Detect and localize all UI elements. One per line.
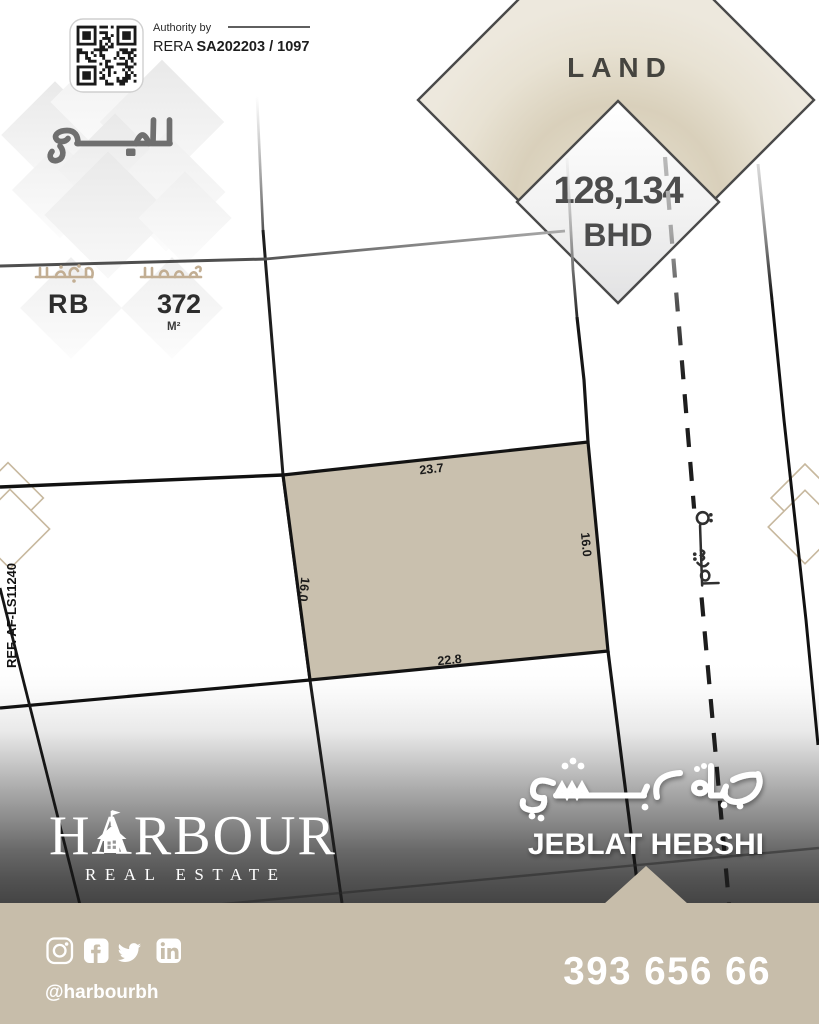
svg-text:16.0: 16.0 [578,532,594,558]
svg-text:RB: RB [48,289,90,319]
svg-text:393 656 66: 393 656 66 [563,950,771,993]
svg-text:HARBOUR: HARBOUR [49,805,337,867]
svg-text:22.8: 22.8 [437,652,463,668]
svg-text:23.7: 23.7 [419,461,445,478]
svg-text:LAND: LAND [567,52,673,83]
svg-text:Authority by: Authority by [153,22,212,34]
svg-text:BHD: BHD [583,217,652,253]
svg-text:RERA SA202203 / 1097: RERA SA202203 / 1097 [153,39,309,55]
svg-text:M²: M² [167,321,181,333]
svg-text:372: 372 [157,289,201,319]
svg-text:REF. AF-LS11240: REF. AF-LS11240 [4,563,19,668]
svg-text:16.0: 16.0 [296,577,312,603]
svg-text:REAL ESTATE: REAL ESTATE [85,865,287,884]
svg-text:JEBLAT HEBSHI: JEBLAT HEBSHI [528,828,764,861]
svg-text:128,134: 128,134 [554,170,684,212]
svg-text:@harbourbh: @harbourbh [45,982,159,1003]
